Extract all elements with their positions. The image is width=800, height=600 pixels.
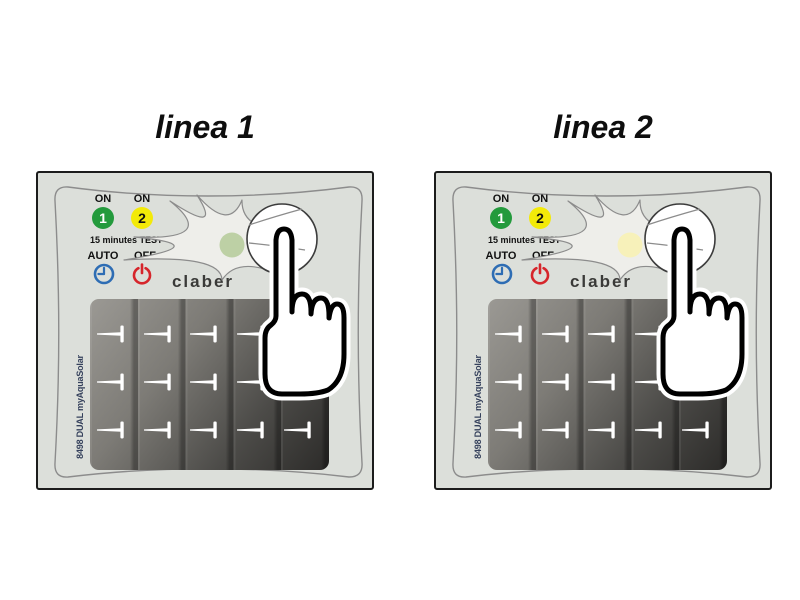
model-label: 8498 DUAL myAquaSolar <box>75 352 87 462</box>
timer-device: 8498 DUAL myAquaSolar ON ON 1 2 15 minut… <box>434 171 772 490</box>
panel-title: linea 2 <box>434 109 772 146</box>
led-indicator <box>618 233 643 258</box>
panel-linea-2: linea 2 8498 DUAL myAquaSolar ON ON 1 2 … <box>434 171 772 490</box>
power-icon <box>130 262 154 286</box>
brand-logo: claber <box>167 272 239 292</box>
model-label: 8498 DUAL myAquaSolar <box>473 352 485 462</box>
line2-button: 2 <box>529 207 551 229</box>
panel-title: linea 1 <box>36 109 374 146</box>
auto-label: AUTO <box>85 250 121 262</box>
solar-panel <box>90 299 329 470</box>
line1-button: 1 <box>92 207 114 229</box>
big-round-button <box>247 204 317 274</box>
test-label: 15 minutes TEST <box>488 235 552 245</box>
line2-button: 2 <box>131 207 153 229</box>
timer-device: 8498 DUAL myAquaSolar ON ON 1 2 15 minut… <box>36 171 374 490</box>
line1-on-label: ON <box>88 193 118 205</box>
figure-canvas: linea 1 <box>0 0 800 600</box>
solar-cell-connectors <box>90 299 329 470</box>
line2-on-label: ON <box>525 193 555 205</box>
led-indicator <box>220 233 245 258</box>
brand-logo: claber <box>565 272 637 292</box>
off-label: OFF <box>129 250 161 262</box>
off-label: OFF <box>527 250 559 262</box>
power-icon <box>528 262 552 286</box>
line1-button: 1 <box>490 207 512 229</box>
clock-icon <box>92 262 116 286</box>
line2-on-label: ON <box>127 193 157 205</box>
big-round-button <box>645 204 715 274</box>
test-label: 15 minutes TEST <box>90 235 154 245</box>
panel-linea-1: linea 1 <box>36 171 374 490</box>
line1-on-label: ON <box>486 193 516 205</box>
auto-label: AUTO <box>483 250 519 262</box>
clock-icon <box>490 262 514 286</box>
solar-panel <box>488 299 727 470</box>
solar-cell-connectors <box>488 299 727 470</box>
